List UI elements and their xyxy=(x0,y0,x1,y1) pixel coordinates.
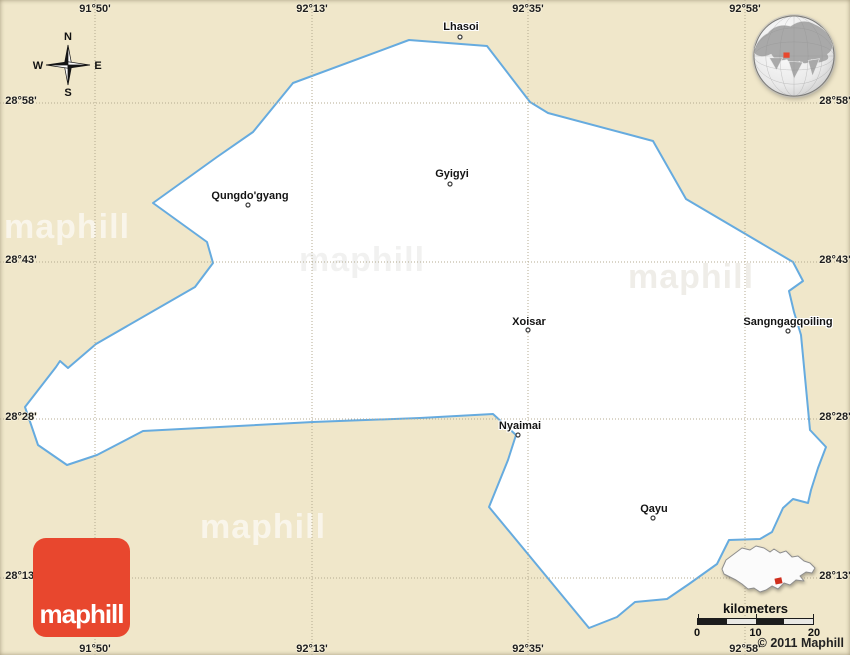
scale-segment xyxy=(784,619,813,624)
watermark-text: maphill xyxy=(4,208,130,246)
globe-inset xyxy=(750,12,838,100)
scale-segment xyxy=(756,619,785,624)
scale-bar-segments xyxy=(697,618,814,625)
region-shape-icon xyxy=(718,542,820,600)
place-dot xyxy=(526,328,530,332)
compass-star-icon: N E S W xyxy=(30,25,106,101)
scale-tick xyxy=(756,614,757,618)
scale-segment xyxy=(698,619,727,624)
compass-letter-w: W xyxy=(33,60,44,72)
globe-marker xyxy=(783,52,789,57)
copyright-text: © 2011 Maphill xyxy=(758,636,844,650)
scale-tick xyxy=(813,614,814,618)
region-locator-inset xyxy=(718,542,820,600)
place-dot xyxy=(786,329,790,333)
globe-icon xyxy=(750,12,838,100)
compass-letter-s: S xyxy=(64,87,71,99)
scale-bar: kilometers 01020 xyxy=(697,602,814,640)
place-dot xyxy=(516,433,520,437)
place-dot xyxy=(246,203,250,207)
scale-tick-label: 0 xyxy=(694,627,700,639)
region-polygon xyxy=(25,40,826,628)
place-dot xyxy=(651,516,655,520)
compass-letter-e: E xyxy=(94,60,101,72)
compass-rose: N E S W xyxy=(30,25,106,101)
scale-segment xyxy=(727,619,756,624)
watermark-text: maphill xyxy=(299,241,425,279)
watermark-text: maphill xyxy=(200,508,326,546)
region-outline xyxy=(722,546,815,592)
place-dot xyxy=(448,182,452,186)
compass-letter-n: N xyxy=(64,31,72,43)
maphill-logo[interactable]: maphill xyxy=(33,538,130,637)
map-canvas: maphillmaphillmaphillmaphill 91°50'91°50… xyxy=(0,0,850,655)
logo-text: maphill xyxy=(33,599,130,630)
watermark-text: maphill xyxy=(628,258,754,296)
place-dot xyxy=(458,35,462,39)
scale-tick xyxy=(698,614,699,618)
